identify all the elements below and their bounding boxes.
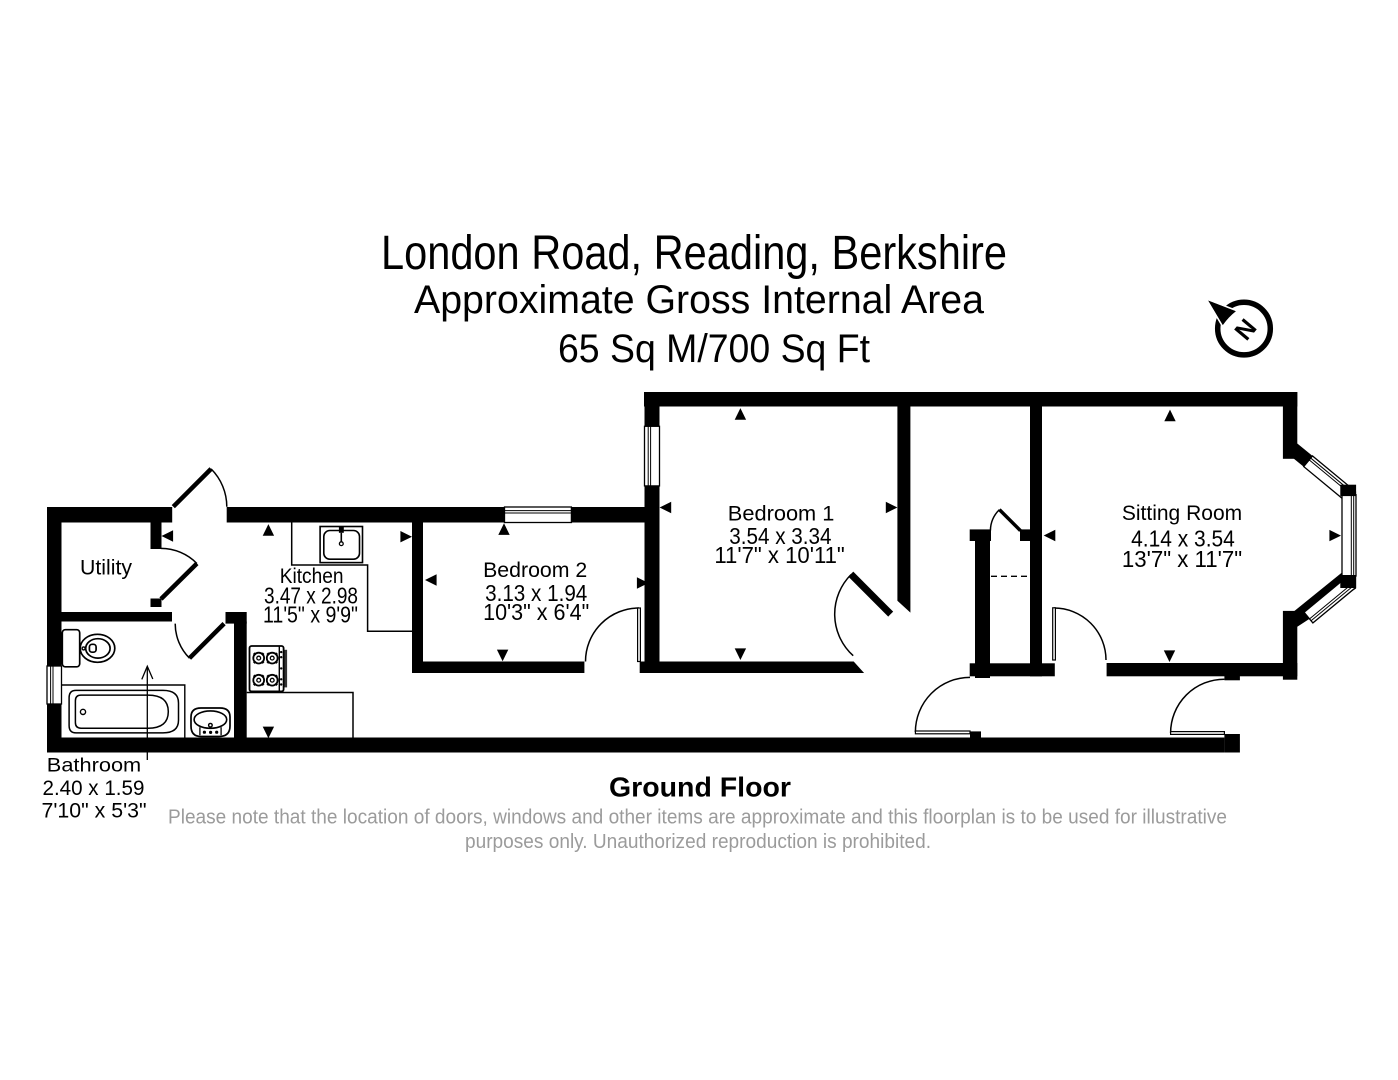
svg-text:7'10" x 5'3": 7'10" x 5'3" [42, 798, 147, 822]
svg-text:purposes only. Unauthorized re: purposes only. Unauthorized reproduction… [465, 831, 931, 853]
svg-text:2.40 x 1.59: 2.40 x 1.59 [43, 776, 145, 800]
svg-text:Bedroom 2: Bedroom 2 [483, 559, 587, 582]
svg-text:Sitting Room: Sitting Room [1122, 502, 1242, 525]
svg-text:Please note that the location: Please note that the location of doors, … [168, 807, 1227, 829]
svg-text:London Road, Reading, Berkshir: London Road, Reading, Berkshire [381, 227, 1007, 280]
svg-text:13'7" x 11'7": 13'7" x 11'7" [1122, 546, 1242, 572]
svg-text:10'3" x 6'4": 10'3" x 6'4" [483, 599, 589, 625]
svg-text:Utility: Utility [80, 557, 132, 580]
svg-text:Approximate Gross Internal Are: Approximate Gross Internal Area [414, 278, 985, 322]
svg-text:Ground Floor: Ground Floor [609, 771, 791, 802]
svg-text:Bathroom: Bathroom [47, 755, 141, 776]
svg-text:11'5" x 9'9": 11'5" x 9'9" [263, 602, 358, 628]
svg-text:65 Sq M/700 Sq Ft: 65 Sq M/700 Sq Ft [558, 327, 870, 371]
svg-text:11'7" x 10'11": 11'7" x 10'11" [714, 542, 844, 568]
